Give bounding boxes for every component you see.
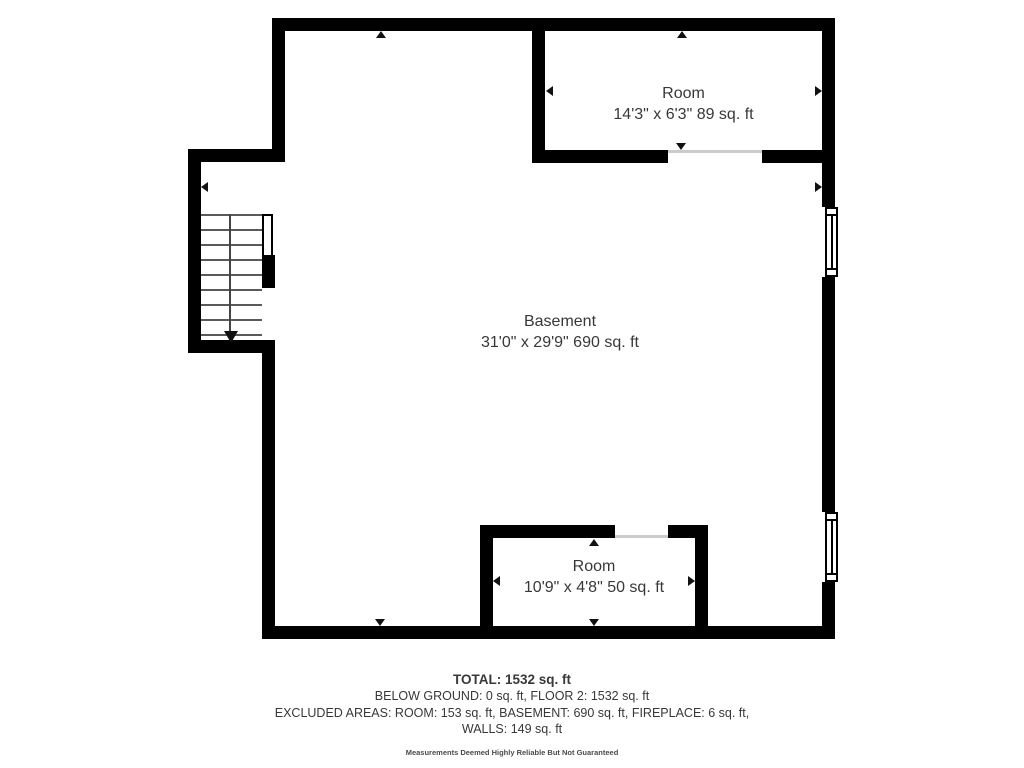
- room2-wall-east: [695, 525, 708, 626]
- room-name: Room: [493, 556, 695, 577]
- room-label-upper-right: Room 14'3" x 6'3" 89 sq. ft: [545, 83, 822, 125]
- window-icon: [825, 207, 838, 277]
- wall-south: [262, 626, 835, 639]
- stair-flight-box: [262, 214, 273, 257]
- dimension-arrow-icon: [201, 182, 208, 192]
- stair-tread: [201, 214, 262, 216]
- window-frame-line: [827, 268, 836, 270]
- stair-tread: [201, 289, 262, 291]
- stair-tread: [201, 244, 262, 246]
- room2-wall-north-a: [480, 525, 615, 538]
- room-name: Room: [545, 83, 822, 104]
- wall-north: [272, 18, 835, 31]
- dimension-arrow-icon: [589, 619, 599, 626]
- room-name: Basement: [410, 311, 710, 332]
- wall-east-middle: [822, 277, 835, 512]
- total-area-text: TOTAL: 1532 sq. ft: [0, 671, 1024, 688]
- wall-east-lower: [822, 582, 835, 639]
- stair-tread: [201, 259, 262, 261]
- stair-tread: [201, 304, 262, 306]
- stairwell-wall-west: [188, 149, 201, 353]
- walls-area-text: WALLS: 149 sq. ft: [0, 721, 1024, 738]
- dimension-arrow-icon: [815, 182, 822, 192]
- room-dimensions: 31'0" x 29'9" 690 sq. ft: [410, 332, 710, 353]
- dimension-arrow-icon: [375, 619, 385, 626]
- floorplan-page: Room 14'3" x 6'3" 89 sq. ft Basement 31'…: [0, 0, 1024, 768]
- wall-west-upper: [272, 18, 285, 162]
- room2-door-opening: [615, 535, 668, 538]
- dimension-arrow-icon: [677, 31, 687, 38]
- room-dimensions: 10'9" x 4'8" 50 sq. ft: [493, 577, 695, 598]
- room1-wall-south-b: [762, 150, 835, 163]
- window-glass-line: [831, 216, 833, 268]
- room2-wall-west: [480, 525, 493, 626]
- dimension-arrow-icon: [376, 31, 386, 38]
- excluded-areas-text: EXCLUDED AREAS: ROOM: 153 sq. ft, BASEME…: [0, 705, 1024, 722]
- room1-door-opening: [668, 150, 762, 153]
- disclaimer-text: Measurements Deemed Highly Reliable But …: [0, 748, 1024, 757]
- room1-wall-south-a: [532, 150, 668, 163]
- dimension-arrow-icon: [589, 539, 599, 546]
- stair-tread: [201, 274, 262, 276]
- wall-east-upper: [822, 18, 835, 207]
- floorplan-canvas: Room 14'3" x 6'3" 89 sq. ft Basement 31'…: [0, 0, 1024, 660]
- stair-centerline: [229, 214, 231, 332]
- stairs-icon: [201, 214, 262, 336]
- stair-tread: [201, 319, 262, 321]
- dimension-arrow-icon: [676, 143, 686, 150]
- room1-wall-west: [532, 18, 545, 163]
- stairs-down-arrow-icon: [224, 331, 238, 343]
- room-label-lower-middle: Room 10'9" x 4'8" 50 sq. ft: [493, 556, 695, 598]
- room-label-basement: Basement 31'0" x 29'9" 690 sq. ft: [410, 311, 710, 353]
- area-summary: TOTAL: 1532 sq. ft BELOW GROUND: 0 sq. f…: [0, 671, 1024, 757]
- window-frame-line: [827, 573, 836, 575]
- stairwell-wall-top: [188, 149, 285, 162]
- window-glass-line: [831, 521, 833, 573]
- stair-tread: [201, 229, 262, 231]
- room-dimensions: 14'3" x 6'3" 89 sq. ft: [545, 104, 822, 125]
- stairwell-wall-segment: [262, 255, 275, 288]
- below-ground-text: BELOW GROUND: 0 sq. ft, FLOOR 2: 1532 sq…: [0, 688, 1024, 705]
- wall-west-lower: [262, 340, 275, 639]
- window-icon: [825, 512, 838, 582]
